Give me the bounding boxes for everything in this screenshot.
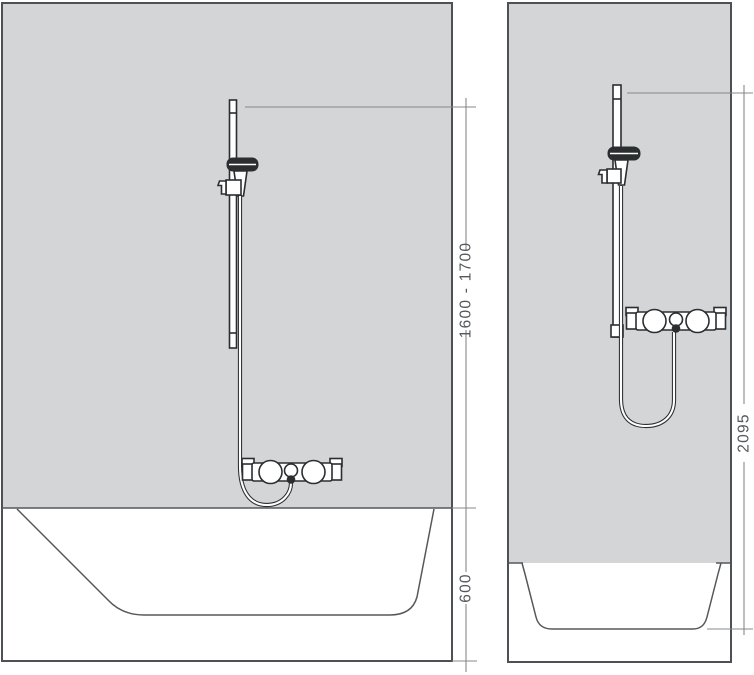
dimension-label-bar-height: 1600 - 1700 [458, 242, 475, 338]
thermostat-right-knob [302, 461, 325, 484]
bathtub-view: 1600 - 1700 600 [2, 3, 477, 672]
shower-tray-view: 2095 [508, 3, 753, 662]
thermostat-outlet [285, 464, 298, 477]
thermostat-right-icon [626, 308, 726, 333]
thermostat-right-union [332, 464, 342, 480]
hose-nut [287, 476, 295, 484]
wall-area [3, 4, 451, 508]
thermostat-left-union [243, 464, 253, 480]
dimension-label-tub-height: 600 [458, 573, 475, 603]
shower-holder [226, 180, 241, 195]
dimension-label-total-height: 2095 [736, 413, 753, 452]
wall-bar-icon [230, 100, 237, 348]
installation-diagram: 1600 - 1700 600 [0, 0, 754, 675]
diagram-svg: 1600 - 1700 600 [0, 0, 754, 675]
thermostat-right-view-left-union [627, 313, 637, 329]
hose-nut-right [672, 325, 680, 333]
bathtub-profile [17, 509, 434, 615]
thermostat-left-knob [259, 461, 282, 484]
thermostat-right-view-outlet [670, 313, 683, 326]
thermostat-right-view-left-knob [643, 310, 666, 333]
thermostat-right-view-right-knob [686, 310, 709, 333]
thermostat-right-view-right-union [716, 313, 726, 329]
shower-tray-profile [522, 563, 721, 629]
shower-holder-right [607, 169, 621, 183]
thermostat-icon [242, 459, 342, 484]
